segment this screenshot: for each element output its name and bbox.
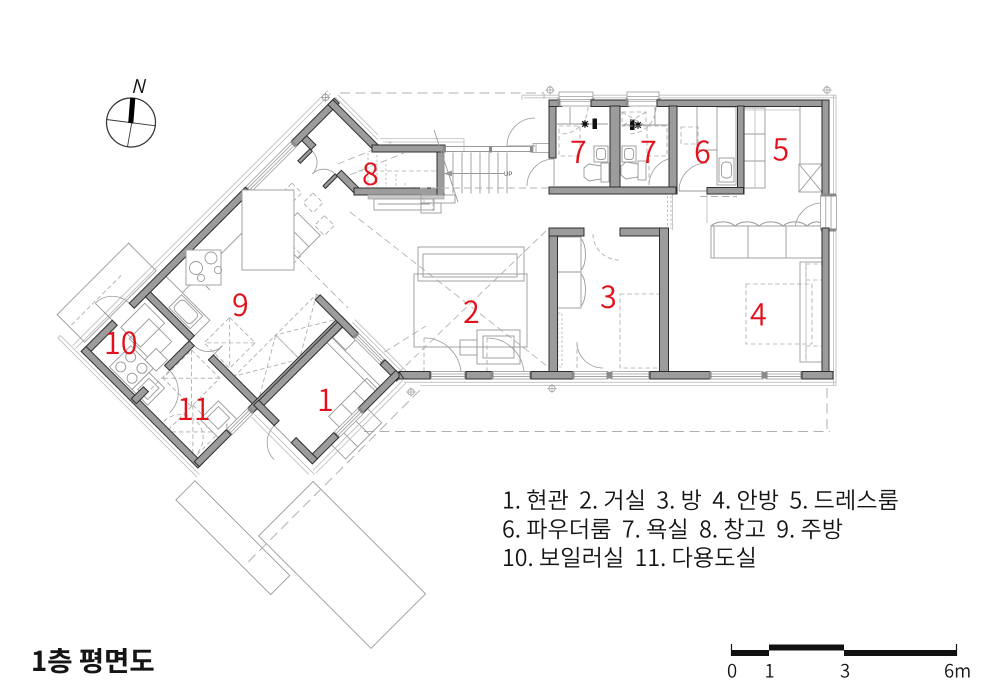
svg-text:UP: UP [504,172,512,178]
